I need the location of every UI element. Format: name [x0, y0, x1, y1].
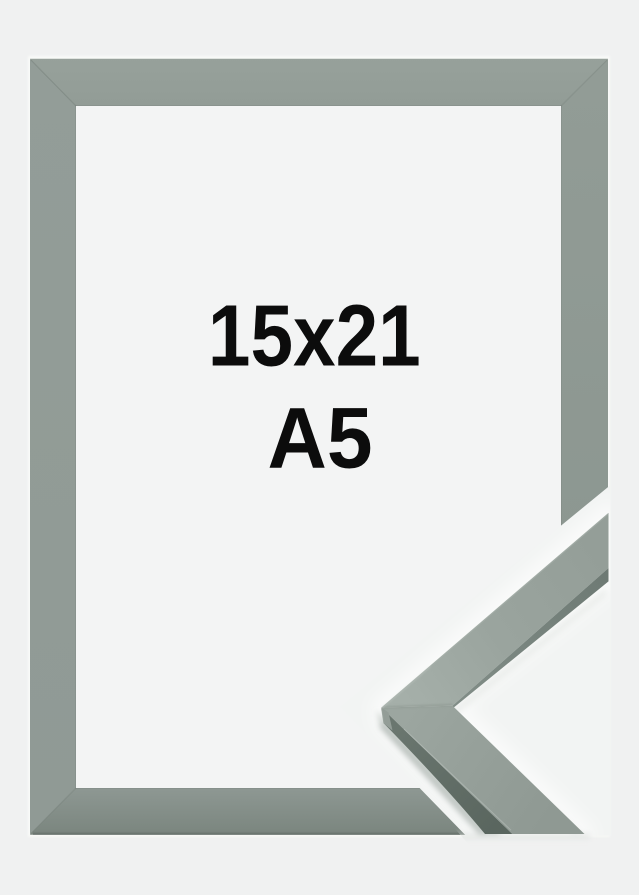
svg-text:A5: A5 — [267, 389, 372, 485]
svg-text:15x21: 15x21 — [208, 288, 421, 385]
